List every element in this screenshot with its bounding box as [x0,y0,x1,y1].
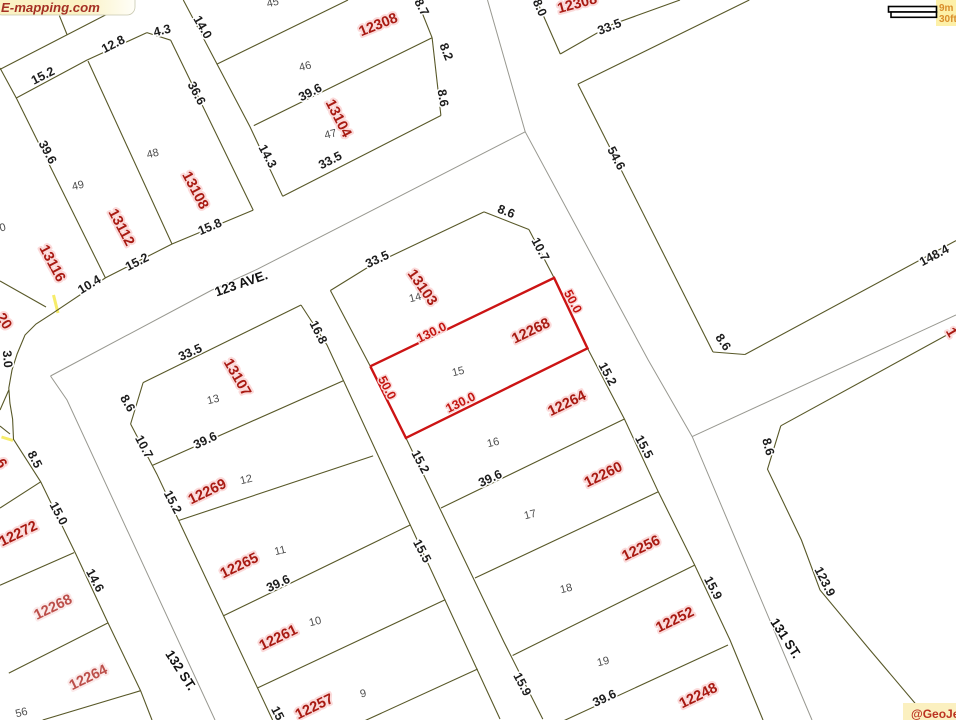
svg-text:3.0: 3.0 [0,350,15,369]
svg-text:@GeoJet,: @GeoJet, [911,707,956,720]
svg-text:8.6: 8.6 [435,88,452,108]
svg-text:E-mapping.com: E-mapping.com [1,0,100,15]
svg-text:9m: 9m [939,3,954,14]
svg-text:30ft: 30ft [939,14,956,25]
